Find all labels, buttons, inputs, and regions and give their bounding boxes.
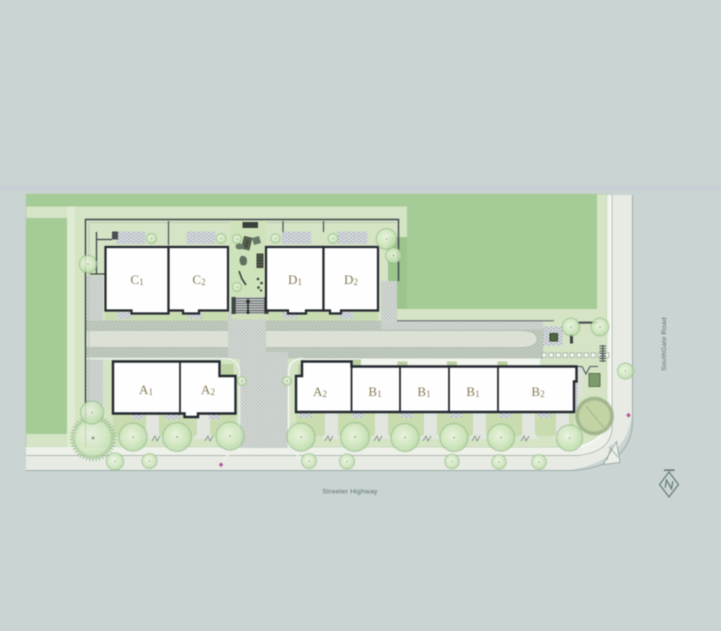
svg-text:Streeter Highway: Streeter Highway [322,489,378,496]
svg-text:SouthGate Road: SouthGate Road [661,317,668,370]
